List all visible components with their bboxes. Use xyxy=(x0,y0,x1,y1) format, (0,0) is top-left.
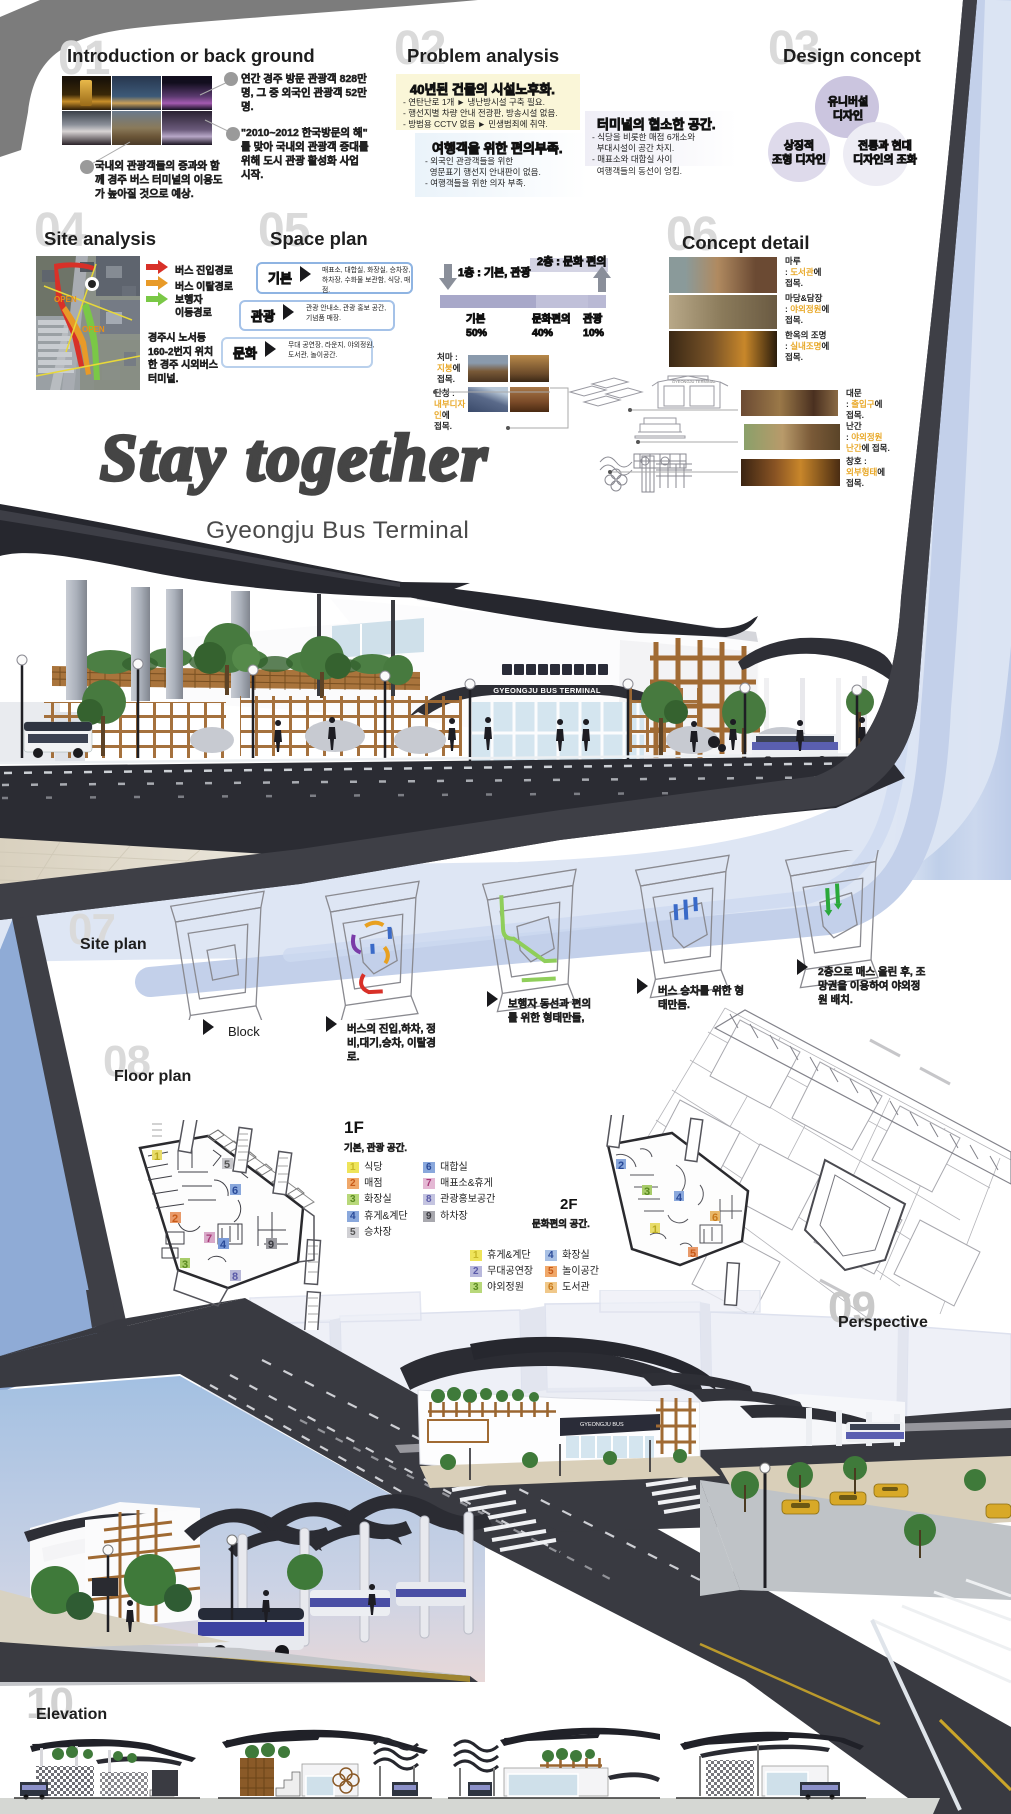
svg-text:1: 1 xyxy=(652,1224,658,1236)
svg-text:5: 5 xyxy=(690,1248,696,1260)
svg-text:6: 6 xyxy=(712,1212,718,1224)
svg-text:3: 3 xyxy=(644,1186,650,1198)
svg-text:8: 8 xyxy=(232,1271,238,1283)
svg-text:9: 9 xyxy=(268,1239,274,1251)
svg-text:4: 4 xyxy=(220,1239,227,1251)
svg-text:3: 3 xyxy=(182,1259,188,1271)
svg-text:2: 2 xyxy=(172,1213,178,1225)
svg-text:2: 2 xyxy=(618,1160,624,1172)
svg-text:GYEONGJU BUS: GYEONGJU BUS xyxy=(580,1422,624,1428)
svg-text:6: 6 xyxy=(232,1185,238,1197)
svg-text:OPEN: OPEN xyxy=(54,295,77,304)
svg-text:1: 1 xyxy=(154,1151,160,1163)
svg-text:5: 5 xyxy=(224,1159,230,1171)
svg-text:4: 4 xyxy=(676,1192,683,1204)
svg-text:OPEN: OPEN xyxy=(82,325,105,334)
svg-text:7: 7 xyxy=(206,1233,212,1245)
